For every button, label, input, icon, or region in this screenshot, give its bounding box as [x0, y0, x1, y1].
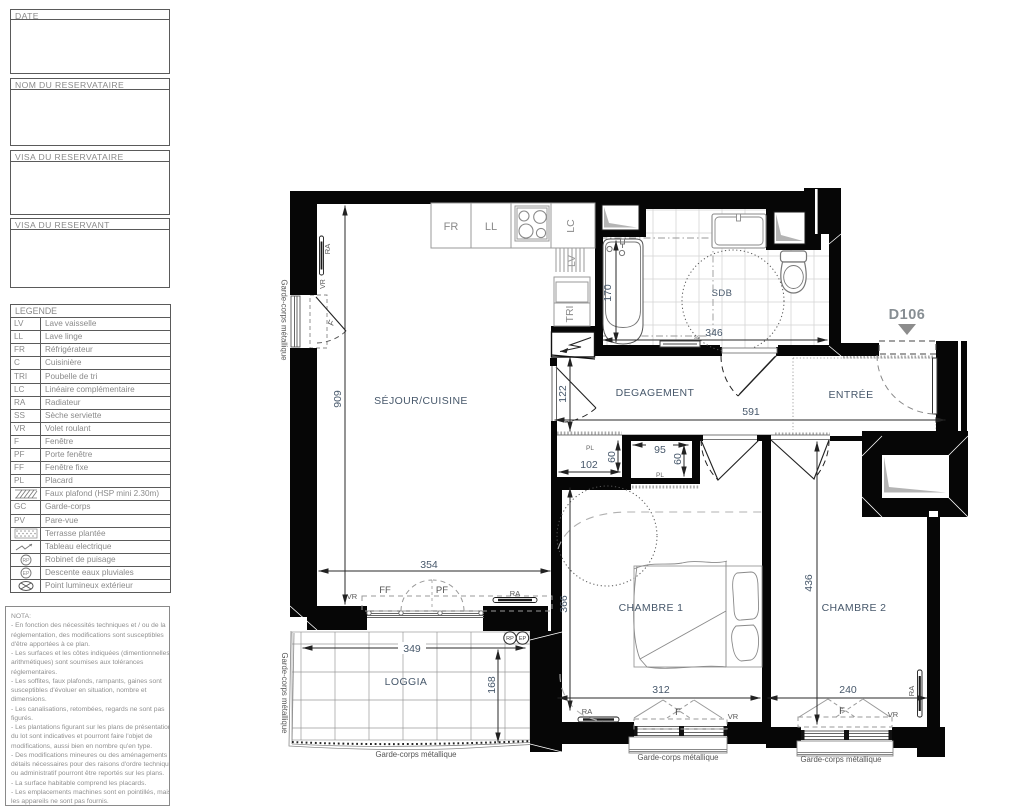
svg-text:349: 349	[403, 643, 421, 655]
svg-text:CHAMBRE 2: CHAMBRE 2	[822, 602, 887, 614]
svg-text:LC: LC	[565, 219, 577, 233]
svg-text:122: 122	[557, 385, 569, 403]
svg-text:F: F	[839, 706, 845, 717]
svg-text:TRI: TRI	[564, 306, 576, 323]
svg-text:240: 240	[839, 684, 857, 696]
svg-text:RP: RP	[506, 636, 514, 642]
svg-text:436: 436	[803, 574, 815, 592]
svg-text:FR: FR	[444, 221, 459, 233]
svg-text:Garde-corps métallique: Garde-corps métallique	[800, 755, 881, 764]
svg-text:VR: VR	[728, 712, 739, 721]
svg-text:EP: EP	[519, 636, 527, 642]
svg-text:PL: PL	[586, 445, 594, 452]
svg-text:Garde-corps métallique: Garde-corps métallique	[280, 652, 289, 733]
svg-text:CHAMBRE 1: CHAMBRE 1	[619, 602, 684, 614]
svg-text:VR: VR	[888, 710, 899, 719]
svg-text:95: 95	[654, 444, 666, 456]
svg-text:SÉJOUR/CUISINE: SÉJOUR/CUISINE	[374, 394, 468, 407]
svg-text:ENTRÉE: ENTRÉE	[829, 388, 874, 401]
svg-text:102: 102	[580, 459, 598, 471]
svg-text:RA: RA	[582, 707, 592, 716]
svg-text:VR: VR	[320, 279, 327, 289]
svg-text:LL: LL	[485, 221, 497, 233]
svg-text:RA: RA	[907, 686, 916, 696]
svg-text:168: 168	[486, 676, 498, 694]
svg-text:366: 366	[558, 595, 570, 613]
svg-text:60: 60	[672, 453, 684, 465]
svg-text:F: F	[675, 707, 681, 718]
svg-text:LOGGIA: LOGGIA	[385, 676, 428, 688]
svg-text:PF: PF	[436, 585, 448, 596]
svg-text:D106: D106	[889, 307, 926, 323]
svg-text:354: 354	[420, 559, 438, 571]
svg-text:170: 170	[602, 284, 614, 302]
svg-text:312: 312	[652, 684, 670, 696]
svg-text:PL: PL	[656, 472, 664, 479]
svg-text:RA: RA	[510, 589, 520, 598]
svg-text:LV: LV	[566, 255, 578, 267]
svg-text:VR: VR	[347, 592, 358, 601]
svg-text:346: 346	[705, 327, 723, 339]
svg-text:591: 591	[742, 406, 760, 418]
svg-text:SDB: SDB	[712, 288, 733, 299]
svg-text:ss: ss	[694, 334, 701, 341]
svg-text:FF: FF	[379, 585, 391, 596]
svg-text:Garde-corps métallique: Garde-corps métallique	[375, 750, 456, 759]
svg-text:60: 60	[606, 451, 618, 463]
svg-text:RA: RA	[323, 244, 332, 254]
svg-text:Garde-corps métallique: Garde-corps métallique	[637, 753, 718, 762]
svg-text:909: 909	[332, 390, 344, 408]
svg-text:Garde-corps métallique: Garde-corps métallique	[280, 279, 289, 360]
svg-text:DEGAGEMENT: DEGAGEMENT	[616, 387, 695, 399]
